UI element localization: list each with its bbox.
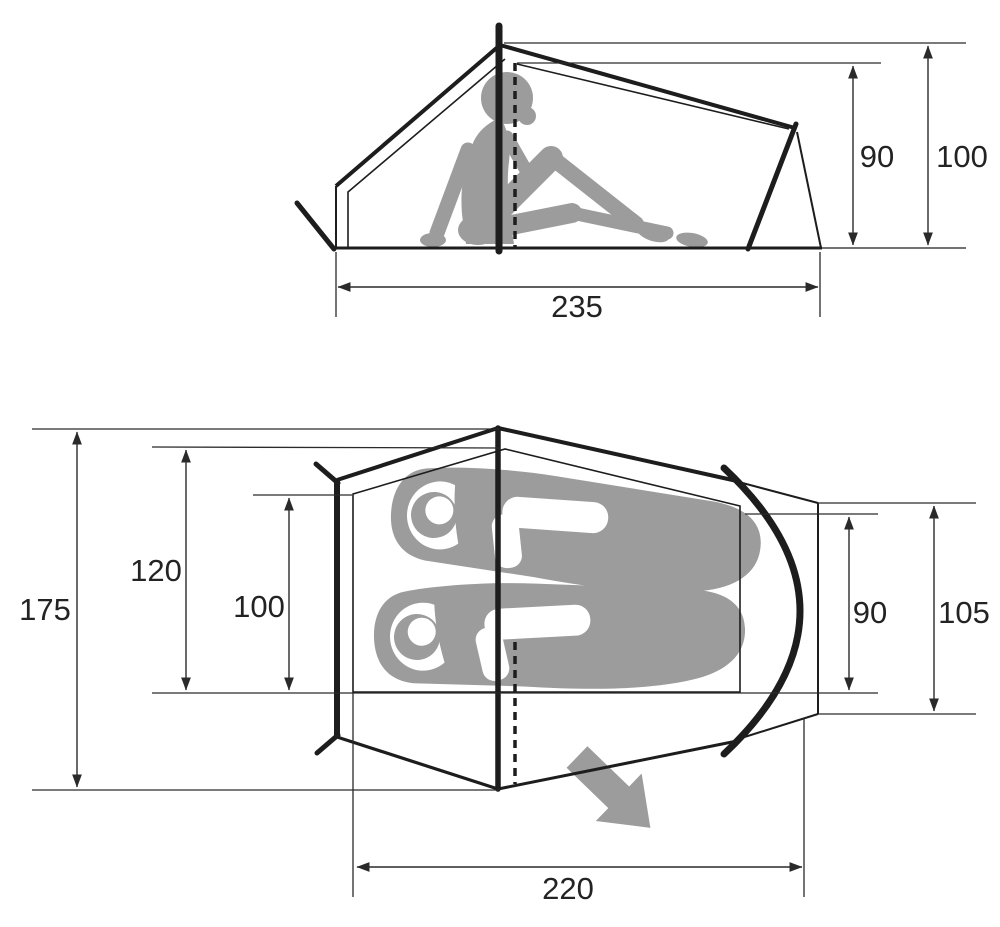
dim-label-inner-height: 90 [860,139,894,174]
fly-rear-edge [797,132,821,248]
diagram-canvas: 90 100 235 [0,0,1000,927]
dim-label-overall-width: 175 [19,592,71,627]
dim-label-inner-width-max: 120 [130,553,182,588]
entrance-direction-arrow [554,733,673,851]
sleeper-bottom [371,570,747,701]
front-guy-peg [297,203,334,249]
sleeper-top [387,462,765,599]
dim-label-inner-width-foot: 90 [853,595,887,630]
dim-label-inner-length: 220 [542,871,594,906]
fly-edge-lower-left [337,737,498,789]
guy-line-top [316,464,338,483]
fly-right-slope [500,45,795,128]
plan-view: 175 120 100 90 105 220 [19,428,990,906]
inner-tent-right [517,64,789,129]
dim-label-floor-length: 235 [551,289,603,324]
side-view: 90 100 235 [297,26,988,324]
hair-bun [518,107,536,125]
guy-line-bottom [317,735,338,753]
dim-label-inner-width-head: 100 [233,589,285,624]
dim-label-outer-width-foot: 105 [938,595,990,630]
tent-dimension-diagram: 90 100 235 [0,0,1000,927]
dim-label-peak-height: 100 [936,139,988,174]
rear-strut-pole [748,124,796,249]
side-view-dimensions: 90 100 235 [336,43,988,324]
sitting-person-silhouette [420,72,709,250]
